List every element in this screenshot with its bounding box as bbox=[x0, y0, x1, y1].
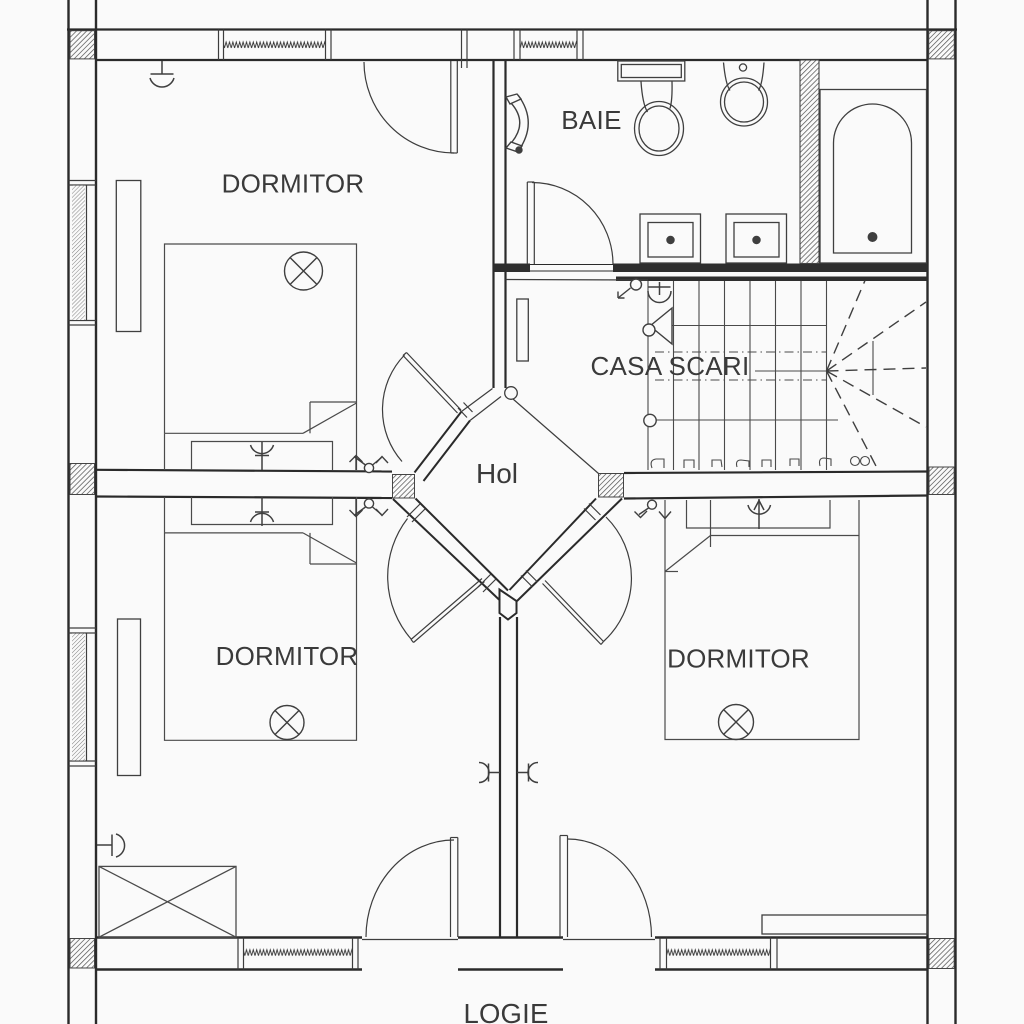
svg-text:CASA SCARI: CASA SCARI bbox=[590, 351, 749, 381]
svg-text:DORMITOR: DORMITOR bbox=[222, 169, 365, 199]
svg-text:BAIE: BAIE bbox=[561, 105, 621, 135]
svg-text:DORMITOR: DORMITOR bbox=[667, 644, 810, 674]
svg-text:LOGIE: LOGIE bbox=[463, 998, 548, 1024]
svg-text:Hol: Hol bbox=[476, 458, 518, 489]
svg-text:DORMITOR: DORMITOR bbox=[216, 641, 359, 671]
